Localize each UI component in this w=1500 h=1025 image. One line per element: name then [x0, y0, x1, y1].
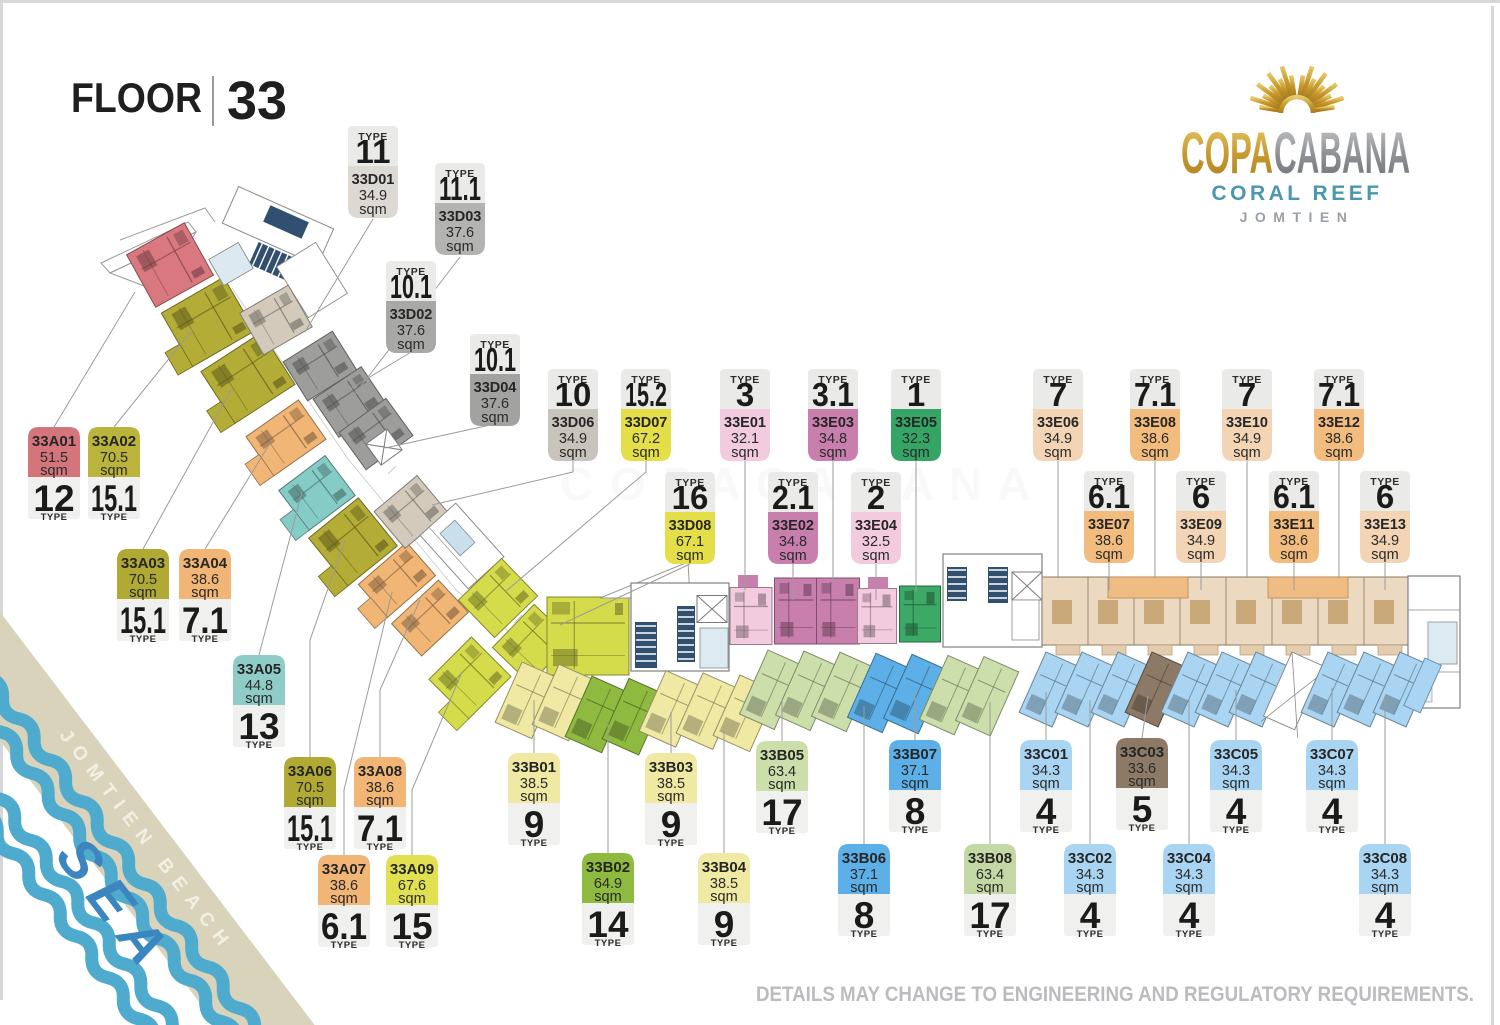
- svg-text:sqm: sqm: [296, 793, 323, 809]
- svg-text:33C03: 33C03: [1120, 744, 1164, 761]
- svg-text:TYPE: TYPE: [769, 826, 796, 837]
- svg-text:10.1: 10.1: [474, 341, 516, 378]
- svg-text:10.1: 10.1: [390, 268, 432, 305]
- svg-text:33C05: 33C05: [1214, 746, 1258, 763]
- svg-text:33E12: 33E12: [1318, 415, 1360, 431]
- svg-text:sqm: sqm: [191, 585, 218, 601]
- svg-text:33: 33: [227, 71, 287, 131]
- svg-text:COPA: COPA: [1181, 121, 1273, 186]
- svg-text:sqm: sqm: [657, 789, 684, 805]
- svg-text:7: 7: [1049, 376, 1067, 413]
- svg-text:33D02: 33D02: [390, 307, 433, 323]
- svg-text:33E08: 33E08: [1134, 415, 1176, 431]
- svg-text:FLOOR: FLOOR: [71, 74, 202, 121]
- svg-text:sqm: sqm: [40, 463, 67, 479]
- svg-text:TYPE: TYPE: [977, 929, 1004, 940]
- svg-text:TYPE: TYPE: [1033, 825, 1060, 836]
- svg-text:33D07: 33D07: [625, 415, 668, 431]
- svg-text:33A03: 33A03: [121, 555, 165, 572]
- svg-text:sqm: sqm: [1175, 880, 1202, 896]
- svg-text:sqm: sqm: [710, 889, 737, 905]
- svg-text:33B03: 33B03: [649, 759, 693, 776]
- svg-text:33A07: 33A07: [322, 861, 366, 878]
- svg-text:sqm: sqm: [1233, 445, 1260, 461]
- svg-text:TYPE: TYPE: [595, 938, 622, 949]
- svg-text:TYPE: TYPE: [658, 838, 685, 849]
- svg-text:33E11: 33E11: [1273, 517, 1314, 533]
- svg-text:TYPE: TYPE: [1372, 929, 1399, 940]
- svg-text:33C07: 33C07: [1310, 746, 1354, 763]
- svg-text:sqm: sqm: [862, 548, 889, 564]
- svg-text:33D06: 33D06: [552, 415, 595, 431]
- svg-text:sqm: sqm: [1318, 776, 1345, 792]
- svg-text:33E02: 33E02: [772, 518, 814, 534]
- svg-text:33E10: 33E10: [1226, 415, 1268, 431]
- svg-text:TYPE: TYPE: [331, 940, 358, 951]
- svg-text:sqm: sqm: [1222, 776, 1249, 792]
- svg-text:sqm: sqm: [1032, 776, 1059, 792]
- svg-text:33C08: 33C08: [1363, 850, 1407, 867]
- svg-text:sqm: sqm: [1044, 445, 1071, 461]
- svg-text:sqm: sqm: [330, 891, 357, 907]
- svg-text:TYPE: TYPE: [1176, 929, 1203, 940]
- svg-text:TYPE: TYPE: [851, 929, 878, 940]
- svg-text:sqm: sqm: [1325, 445, 1352, 461]
- svg-text:7.1: 7.1: [1318, 376, 1360, 413]
- svg-text:33A01: 33A01: [32, 433, 76, 450]
- svg-text:TYPE: TYPE: [399, 940, 426, 951]
- svg-text:7: 7: [1238, 376, 1256, 413]
- svg-text:TYPE: TYPE: [297, 842, 324, 853]
- svg-text:sqm: sqm: [901, 776, 928, 792]
- svg-text:sqm: sqm: [1128, 774, 1155, 790]
- svg-text:sqm: sqm: [768, 777, 795, 793]
- svg-text:sqm: sqm: [632, 445, 659, 461]
- svg-text:TYPE: TYPE: [902, 825, 929, 836]
- svg-text:7.1: 7.1: [1134, 376, 1176, 413]
- svg-text:33A04: 33A04: [183, 555, 228, 572]
- svg-text:1: 1: [907, 376, 925, 413]
- svg-text:sqm: sqm: [1095, 547, 1122, 563]
- svg-text:33C02: 33C02: [1068, 850, 1112, 867]
- svg-text:sqm: sqm: [100, 463, 127, 479]
- svg-text:TYPE: TYPE: [246, 740, 273, 751]
- svg-text:33C04: 33C04: [1167, 850, 1212, 867]
- svg-text:TYPE: TYPE: [711, 938, 738, 949]
- svg-text:sqm: sqm: [1187, 547, 1214, 563]
- svg-text:6.1: 6.1: [1273, 478, 1315, 515]
- svg-text:TYPE: TYPE: [1223, 825, 1250, 836]
- svg-text:33E03: 33E03: [812, 415, 854, 431]
- svg-text:33E04: 33E04: [855, 518, 897, 534]
- svg-text:sqm: sqm: [1141, 445, 1168, 461]
- svg-text:2: 2: [867, 479, 885, 516]
- svg-text:33B04: 33B04: [702, 859, 747, 876]
- svg-text:sqm: sqm: [398, 891, 425, 907]
- svg-text:TYPE: TYPE: [41, 512, 68, 523]
- svg-text:33B08: 33B08: [968, 850, 1012, 867]
- svg-text:33B07: 33B07: [893, 746, 937, 763]
- svg-text:15.2: 15.2: [625, 376, 667, 413]
- svg-text:33B06: 33B06: [842, 850, 886, 867]
- svg-text:sqm: sqm: [976, 880, 1003, 896]
- svg-text:sqm: sqm: [559, 445, 586, 461]
- svg-text:10: 10: [555, 376, 592, 413]
- svg-text:sqm: sqm: [779, 548, 806, 564]
- svg-text:6: 6: [1192, 478, 1210, 515]
- svg-text:33D03: 33D03: [439, 209, 482, 225]
- svg-text:3: 3: [736, 376, 754, 413]
- svg-text:3.1: 3.1: [812, 376, 854, 413]
- svg-text:TYPE: TYPE: [367, 842, 394, 853]
- svg-text:sqm: sqm: [1280, 547, 1307, 563]
- svg-text:TYPE: TYPE: [1319, 825, 1346, 836]
- svg-text:11.1: 11.1: [439, 170, 481, 207]
- svg-text:33E07: 33E07: [1088, 517, 1130, 533]
- svg-text:6.1: 6.1: [1088, 478, 1130, 515]
- svg-text:6: 6: [1376, 478, 1394, 515]
- svg-text:sqm: sqm: [481, 410, 508, 426]
- svg-text:CORAL REEF: CORAL REEF: [1211, 182, 1382, 205]
- svg-text:sqm: sqm: [819, 445, 846, 461]
- svg-text:sqm: sqm: [1076, 880, 1103, 896]
- svg-text:16: 16: [672, 479, 709, 516]
- svg-text:33E06: 33E06: [1037, 415, 1079, 431]
- svg-text:33D04: 33D04: [474, 380, 517, 396]
- svg-text:33A08: 33A08: [358, 763, 402, 780]
- svg-text:33D01: 33D01: [352, 172, 395, 188]
- svg-text:sqm: sqm: [850, 880, 877, 896]
- svg-text:TYPE: TYPE: [1077, 929, 1104, 940]
- svg-text:33E09: 33E09: [1180, 517, 1222, 533]
- svg-text:TYPE: TYPE: [192, 634, 219, 645]
- svg-text:sqm: sqm: [446, 239, 473, 255]
- svg-text:sqm: sqm: [520, 789, 547, 805]
- svg-text:11: 11: [356, 133, 391, 170]
- svg-text:sqm: sqm: [676, 548, 703, 564]
- svg-text:33A09: 33A09: [390, 861, 434, 878]
- svg-text:TYPE: TYPE: [101, 512, 128, 523]
- svg-text:2.1: 2.1: [772, 479, 814, 516]
- svg-text:TYPE: TYPE: [521, 838, 548, 849]
- svg-text:33E13: 33E13: [1364, 517, 1406, 533]
- svg-text:33D08: 33D08: [669, 518, 712, 534]
- svg-text:CABANA: CABANA: [1274, 121, 1410, 186]
- svg-text:33B02: 33B02: [586, 859, 630, 876]
- svg-text:sqm: sqm: [366, 793, 393, 809]
- svg-text:33A02: 33A02: [92, 433, 136, 450]
- svg-text:sqm: sqm: [397, 337, 424, 353]
- svg-text:sqm: sqm: [594, 889, 621, 905]
- svg-text:DETAILS MAY CHANGE TO ENGINEER: DETAILS MAY CHANGE TO ENGINEERING AND RE…: [756, 983, 1474, 1006]
- svg-text:TYPE: TYPE: [130, 634, 157, 645]
- svg-text:33A05: 33A05: [237, 661, 281, 678]
- svg-text:33E01: 33E01: [724, 415, 766, 431]
- svg-text:JOMTIEN: JOMTIEN: [1240, 209, 1355, 225]
- svg-text:sqm: sqm: [902, 445, 929, 461]
- svg-text:TYPE: TYPE: [1129, 823, 1156, 834]
- svg-text:33A06: 33A06: [288, 763, 332, 780]
- svg-text:33E05: 33E05: [895, 415, 937, 431]
- svg-text:33B05: 33B05: [760, 747, 804, 764]
- svg-text:sqm: sqm: [245, 691, 272, 707]
- svg-text:sqm: sqm: [731, 445, 758, 461]
- svg-text:33B01: 33B01: [512, 759, 556, 776]
- svg-text:33C01: 33C01: [1024, 746, 1068, 763]
- svg-text:sqm: sqm: [1371, 880, 1398, 896]
- svg-text:sqm: sqm: [1371, 547, 1398, 563]
- svg-text:sqm: sqm: [359, 202, 386, 218]
- svg-text:sqm: sqm: [129, 585, 156, 601]
